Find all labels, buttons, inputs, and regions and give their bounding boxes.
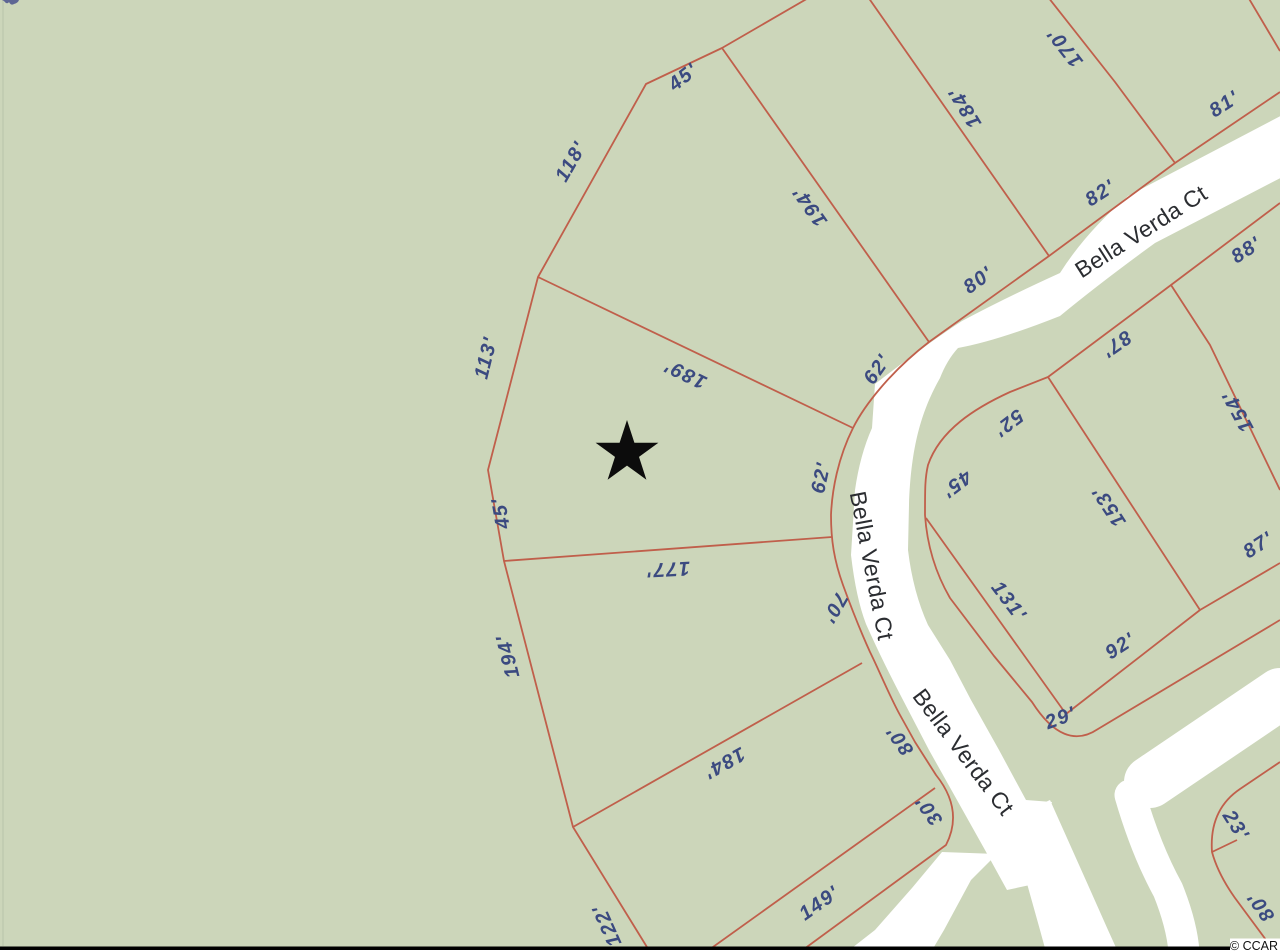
svg-text:177': 177' bbox=[645, 557, 690, 581]
svg-text:© CCAR: © CCAR bbox=[1230, 939, 1278, 952]
